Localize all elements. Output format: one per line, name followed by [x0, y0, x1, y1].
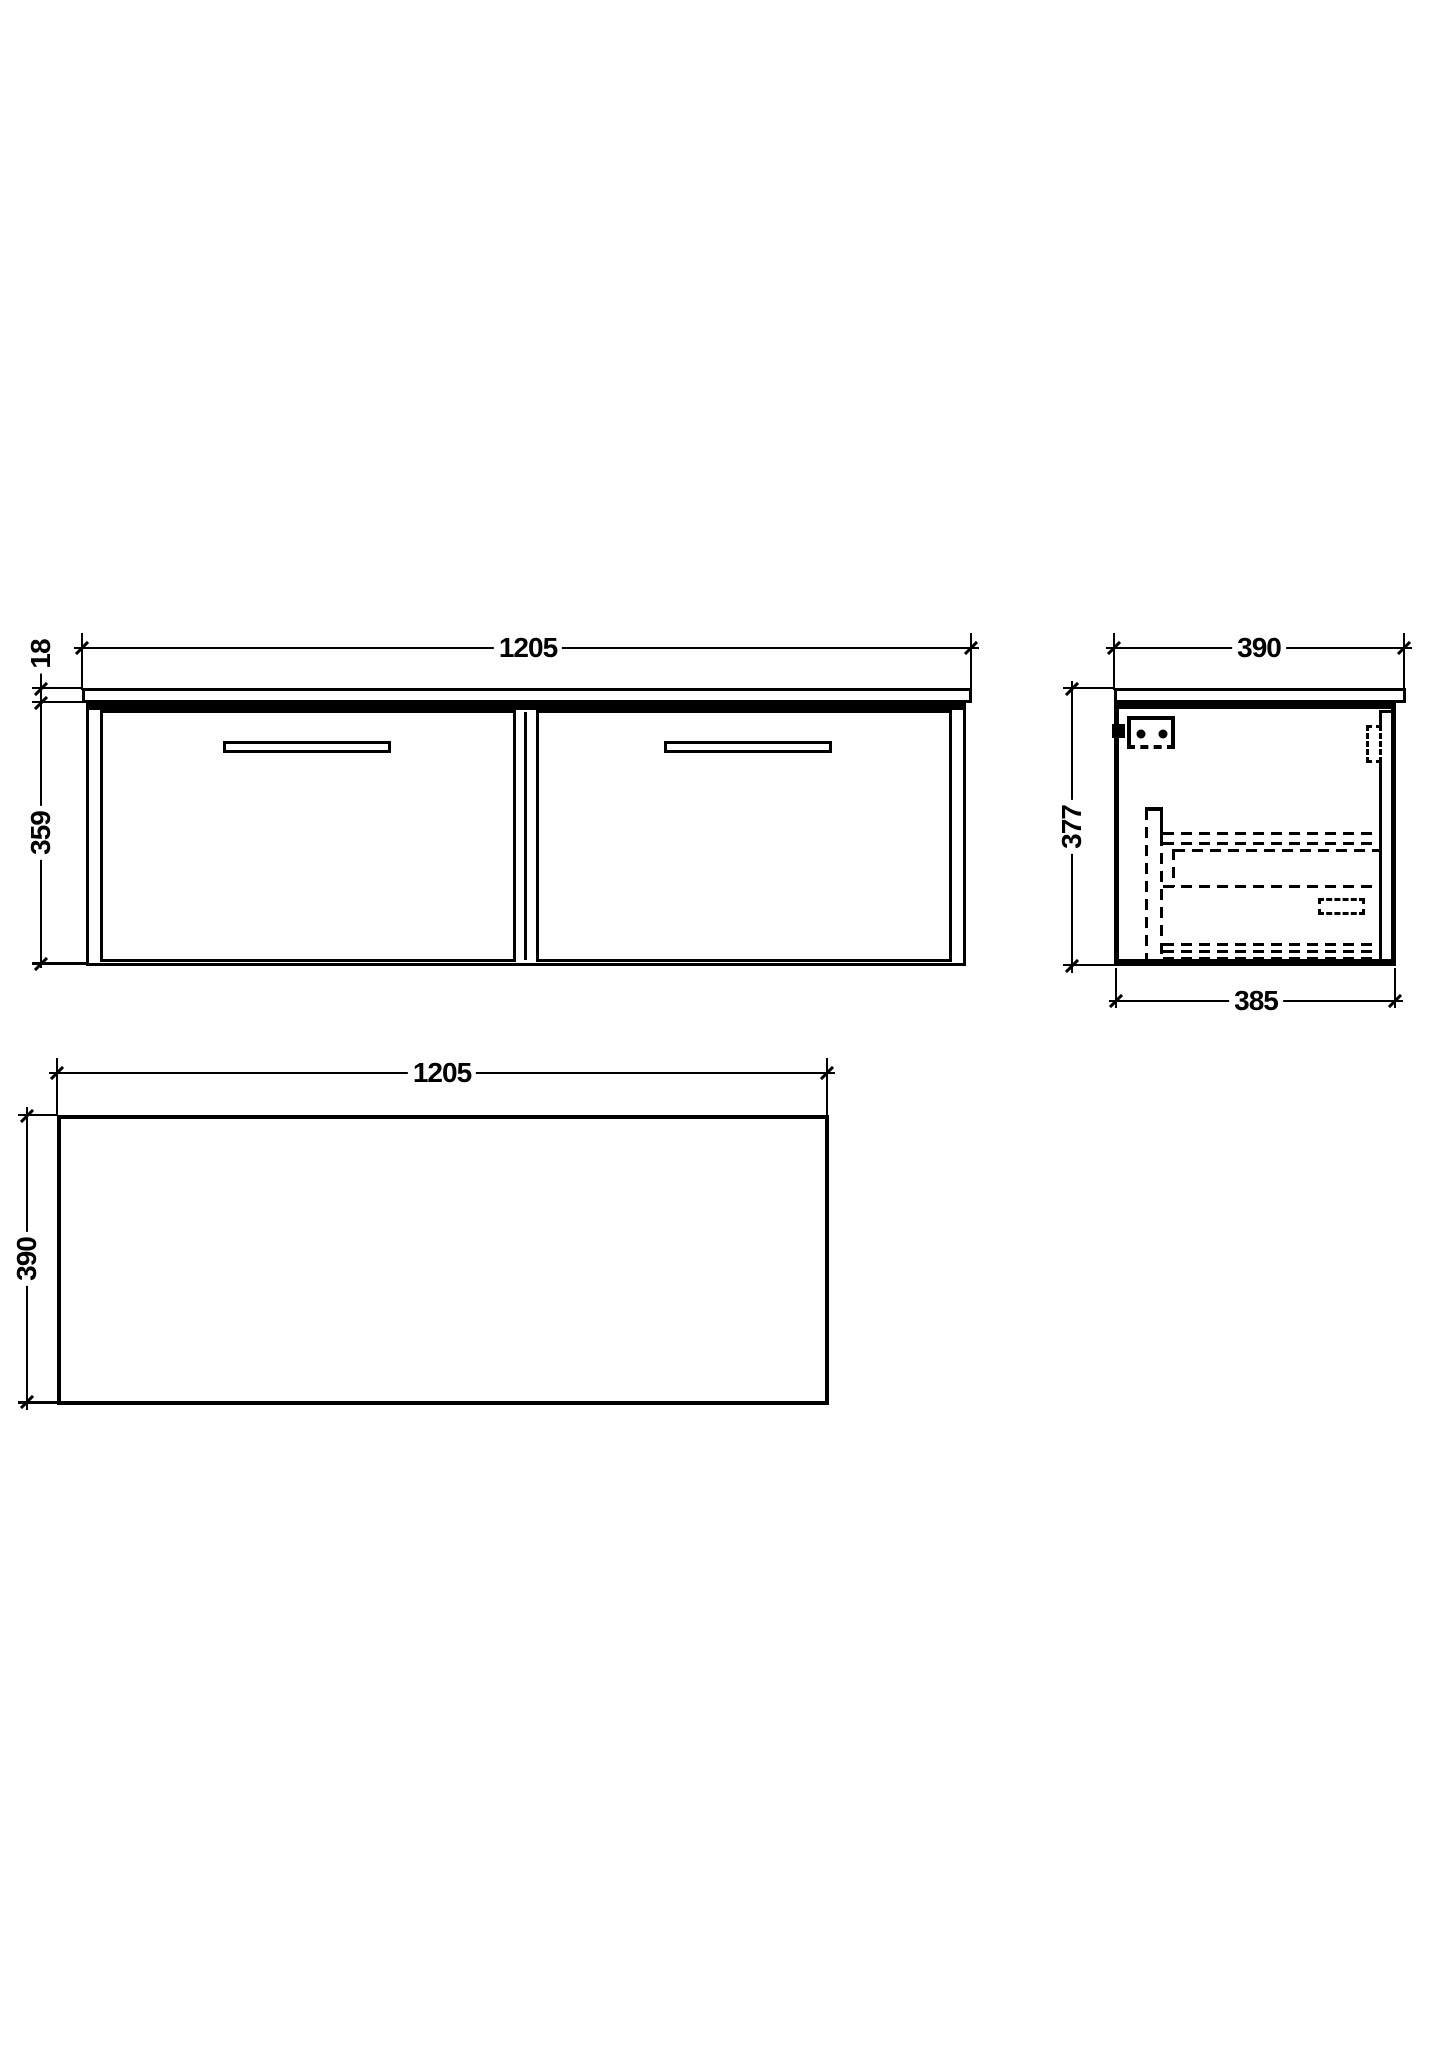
- plan-view: 1205 390: [0, 0, 1445, 2045]
- extension-line: [18, 1401, 57, 1404]
- plan-width-dimension-label: 1205: [408, 1059, 476, 1087]
- extension-line: [826, 1058, 828, 1115]
- technical-drawing-canvas: 1205 18 359: [0, 0, 1445, 2045]
- plan-worktop-outline: [57, 1115, 829, 1405]
- extension-line: [56, 1058, 58, 1115]
- plan-depth-dimension-label: 390: [13, 1232, 41, 1286]
- extension-line: [18, 1114, 57, 1116]
